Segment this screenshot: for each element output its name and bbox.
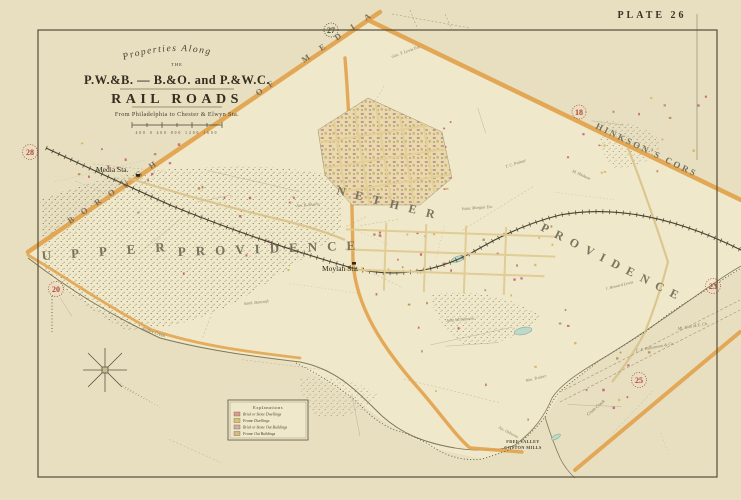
plate-number: PLATE 26 [617, 10, 686, 21]
moylan-station: Moylan Sta. [322, 262, 359, 273]
legend-box: Explanations Brick or Stone Dwellings Fr… [228, 400, 308, 440]
atlas-map: 27 28 18 20 23 25 BOROUGH OF MEDIA HINKS… [0, 0, 741, 500]
title-line-subtitle: From Philadelphia to Chester & Elwyn Sta… [115, 111, 239, 118]
scale-labels: 400 0 400 800 1200 1600 [136, 131, 219, 135]
legend-title: Explanations [253, 405, 283, 410]
place-label-free-valley: FREE VALLEY [506, 439, 539, 444]
ref-number: 20 [52, 285, 60, 294]
ref-number: 23 [709, 282, 717, 291]
title-line-the: THE [171, 62, 183, 67]
title-line-railroad-names: P.W.&B. — B.&O. and P.&W.C. [84, 73, 270, 87]
legend-swatch [234, 419, 240, 423]
ref-number: 28 [26, 148, 34, 157]
station-label: Media Sta. [96, 165, 129, 174]
place-label-free-valley-sub: COTTON MILLS [504, 445, 542, 450]
title-line-rail-roads: RAIL ROADS [111, 92, 243, 107]
legend-item-label: Brick or Stone Dwellings [243, 413, 282, 417]
station-label: Moylan Sta. [322, 264, 359, 273]
ref-number: 25 [635, 376, 643, 385]
legend-swatch [234, 412, 240, 416]
legend-swatch [234, 425, 240, 429]
ref-number: 18 [575, 108, 583, 117]
map-sheet: 27 28 18 20 23 25 BOROUGH OF MEDIA HINKS… [0, 0, 741, 500]
legend-item-label: Brick or Stone Out Buildings [243, 426, 288, 430]
legend-item-label: Frame Dwellings [242, 419, 270, 423]
legend-item-label: Frame Out Buildings [242, 432, 276, 436]
legend-swatch [234, 432, 240, 436]
